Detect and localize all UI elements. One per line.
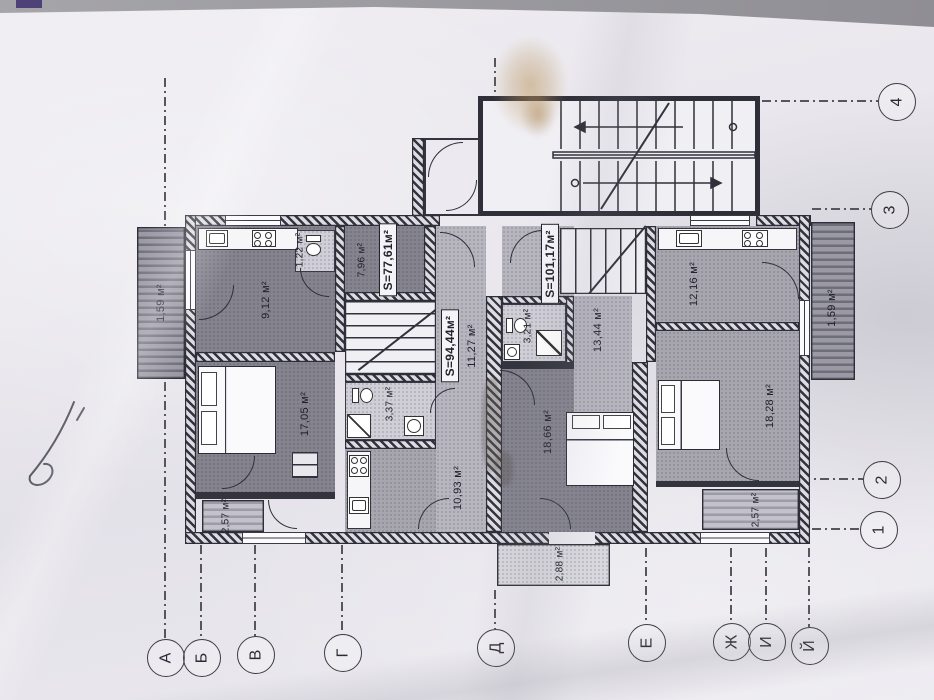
- wall-segment: [502, 296, 574, 304]
- room-area-label: 10,93 м²: [452, 466, 464, 510]
- room-entrance-porch: [497, 544, 610, 586]
- window: [225, 215, 281, 226]
- room-area-label: 1,59 м²: [826, 289, 838, 327]
- pillow: [603, 415, 631, 429]
- axis-line: [730, 548, 732, 623]
- bed-icon: [566, 412, 634, 486]
- axis-line: [808, 548, 810, 627]
- stove-icon: [349, 455, 369, 477]
- axis-letter-Г: Г: [324, 634, 362, 672]
- toilet-icon: [306, 235, 321, 256]
- axis-line: [812, 208, 871, 210]
- sink-basin: [352, 500, 366, 511]
- axis-line: [812, 528, 860, 530]
- axis-letter-В: В: [237, 636, 275, 674]
- axis-number-2: 2: [863, 461, 901, 499]
- room-area-label: 2,57 м²: [221, 499, 232, 534]
- handwritten-note: [14, 392, 98, 496]
- wall-segment: [345, 440, 436, 449]
- stairs-icon: [483, 101, 755, 211]
- room-area-label: 11,27 м²: [466, 324, 478, 367]
- apartment-area-label: S=77,61м²: [379, 224, 397, 297]
- wall-segment: [486, 296, 502, 532]
- axis-letter-И: И: [748, 623, 786, 661]
- room-area-label: 18,28 м²: [764, 384, 776, 428]
- paper-sheet: 1,59 м² 9,12 м² 1,22 м² 7,96 м² S=77,61м…: [0, 0, 934, 700]
- door-opening: [549, 532, 595, 544]
- room-area-label: 12,16 м²: [688, 262, 700, 306]
- pillow: [661, 385, 675, 413]
- axis-letter-А: А: [147, 639, 185, 677]
- axis-line: [254, 545, 256, 636]
- room-area-label: 3,21 м²: [523, 309, 534, 344]
- axis-line: [645, 548, 647, 624]
- sink-basin: [209, 233, 225, 244]
- room-area-label: 13,44 м²: [592, 308, 604, 352]
- wall-segment: [335, 226, 345, 352]
- washer-icon: [504, 344, 520, 360]
- wall-segment: [345, 374, 436, 382]
- apartment-stairs-left: [345, 301, 436, 374]
- bed-icon: [658, 380, 720, 450]
- wall-segment: [646, 226, 656, 362]
- wall-segment: [632, 362, 648, 532]
- wall-segment: [656, 481, 799, 487]
- stove-icon: [252, 230, 276, 247]
- axis-number-1: 1: [860, 511, 898, 549]
- apartment-area-label: S=94,44м²: [441, 310, 459, 383]
- room-area-label: 1,22 м²: [295, 233, 306, 268]
- washer-icon: [404, 416, 424, 436]
- axis-line: [200, 545, 202, 638]
- sink-icon: [206, 230, 228, 247]
- axis-line: [762, 100, 878, 102]
- sink-basin: [679, 233, 699, 244]
- common-stairwell: [478, 96, 760, 216]
- wall-segment: [185, 215, 440, 226]
- window: [185, 250, 196, 310]
- axis-letter-Ж: Ж: [713, 623, 751, 661]
- window: [690, 215, 750, 226]
- sink-icon: [676, 230, 702, 247]
- room-area-label: 2,88 м²: [555, 547, 566, 582]
- wall-segment: [196, 492, 335, 499]
- pillow: [572, 415, 600, 429]
- axis-line: [494, 58, 496, 96]
- pillow: [201, 372, 217, 406]
- wall-segment: [196, 352, 335, 362]
- axis-line: [494, 590, 496, 629]
- axis-letter-Б: Б: [183, 639, 221, 677]
- wall-segment: [566, 296, 574, 366]
- sink-icon: [349, 497, 369, 514]
- small-steps-icon: [292, 452, 318, 478]
- stair-break-line: [588, 225, 646, 294]
- window: [242, 532, 306, 544]
- room-loggia-bottom-left: [202, 500, 264, 532]
- apartment-stairs-right: [560, 228, 646, 294]
- axis-letter-Д: Д: [477, 629, 515, 667]
- room-area-label: 9,12 м²: [260, 281, 272, 319]
- floor-plan-photo: 1,59 м² 9,12 м² 1,22 м² 7,96 м² S=77,61м…: [0, 0, 934, 700]
- axis-number-4: 4: [878, 83, 916, 121]
- shower-icon: [347, 414, 371, 438]
- room-area-label: 3,37 м²: [385, 387, 396, 422]
- axis-line: [341, 545, 343, 634]
- hall-area-label: 7,96 м²: [357, 243, 368, 278]
- pillow: [201, 411, 217, 445]
- door-arc: [268, 500, 297, 529]
- pillow: [661, 417, 675, 445]
- window: [700, 532, 770, 544]
- room-area-label: 1,59 м²: [155, 284, 167, 322]
- axis-line: [765, 548, 767, 623]
- axis-line: [801, 478, 863, 480]
- shower-icon: [536, 330, 562, 356]
- axis-letter-Й: Й: [791, 627, 829, 665]
- wall-segment: [799, 215, 810, 544]
- room-area-label: 17,05 м²: [299, 392, 311, 436]
- window: [799, 300, 810, 356]
- bed-icon: [198, 366, 276, 454]
- toilet-icon: [352, 388, 373, 403]
- apartment-area-label: S=101,17м²: [541, 224, 559, 304]
- stove-icon: [742, 230, 768, 247]
- wall-segment: [412, 138, 424, 216]
- room-area-label: 18,66 м²: [542, 410, 554, 454]
- room-area-label: 2,57 м²: [751, 493, 762, 528]
- axis-letter-Е: Е: [628, 624, 666, 662]
- table-edge-object: [16, 0, 42, 8]
- wall-segment: [656, 322, 799, 331]
- stair-break-line: [358, 305, 441, 371]
- axis-number-3: 3: [871, 191, 909, 229]
